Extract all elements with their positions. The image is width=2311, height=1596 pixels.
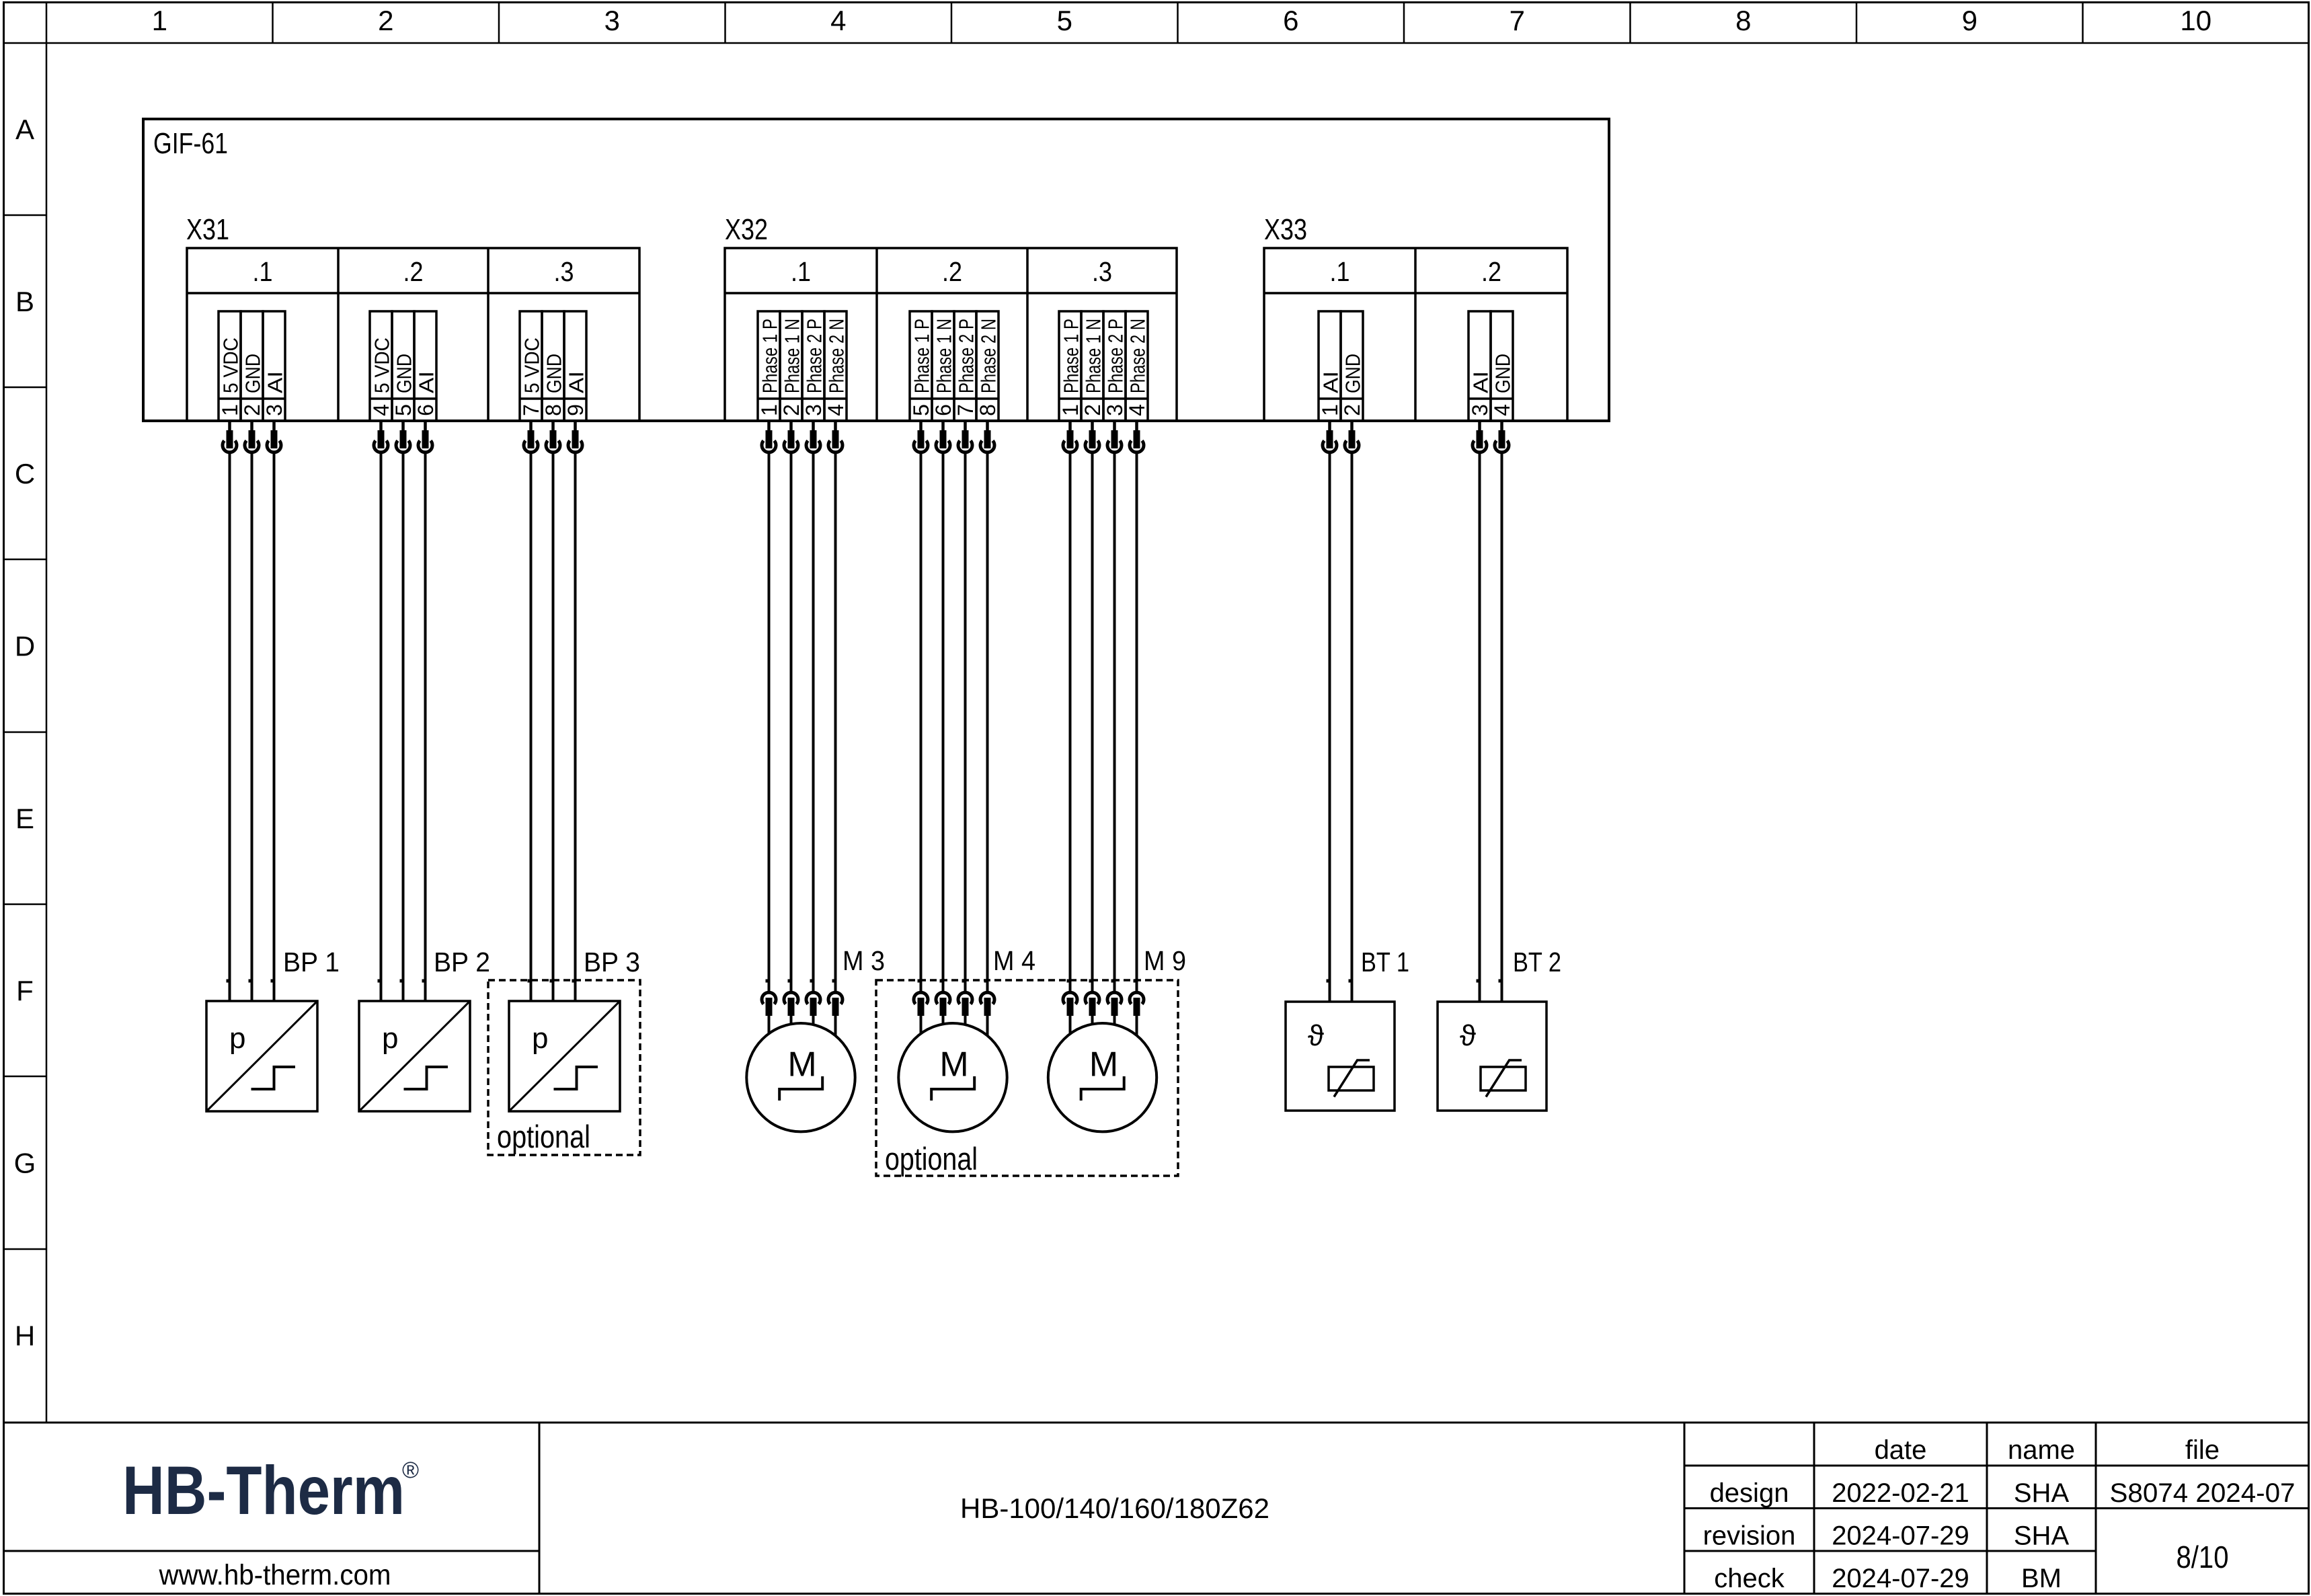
svg-text:check: check — [1714, 1564, 1785, 1593]
svg-text:1: 1 — [757, 404, 781, 416]
svg-text:p: p — [382, 1022, 398, 1055]
svg-text:4: 4 — [824, 404, 848, 416]
svg-text:BP 2: BP 2 — [434, 947, 490, 977]
svg-text:X32: X32 — [725, 213, 768, 246]
svg-text:AI: AI — [565, 371, 588, 393]
svg-text:.1: .1 — [253, 256, 273, 287]
svg-text:.3: .3 — [1092, 256, 1112, 287]
svg-text:GIF-61: GIF-61 — [153, 127, 228, 160]
svg-text:HB-Therm: HB-Therm — [122, 1452, 405, 1529]
svg-text:S8074 2024-07: S8074 2024-07 — [2110, 1478, 2296, 1508]
svg-text:AI: AI — [1319, 371, 1343, 393]
svg-text:M 4: M 4 — [993, 945, 1035, 976]
svg-text:GND: GND — [1491, 354, 1515, 393]
svg-text:Phase 2 N: Phase 2 N — [977, 319, 1001, 393]
svg-text:Phase 1 P: Phase 1 P — [910, 319, 934, 393]
svg-text:5: 5 — [909, 404, 933, 416]
svg-text:4: 4 — [1125, 404, 1149, 416]
svg-text:D: D — [15, 631, 35, 662]
svg-text:1: 1 — [218, 404, 242, 416]
svg-text:date: date — [1875, 1435, 1927, 1465]
svg-text:GND: GND — [241, 354, 265, 393]
svg-text:GND: GND — [543, 354, 566, 393]
svg-text:1: 1 — [1318, 404, 1342, 416]
svg-text:AI: AI — [1469, 371, 1493, 393]
svg-text:Phase 2 P: Phase 2 P — [803, 319, 826, 393]
svg-text:6: 6 — [1283, 5, 1298, 36]
svg-text:2: 2 — [779, 404, 804, 416]
svg-text:.2: .2 — [1481, 256, 1501, 287]
svg-text:10: 10 — [2180, 5, 2211, 36]
svg-text:.2: .2 — [942, 256, 962, 287]
svg-text:7: 7 — [519, 404, 543, 416]
svg-text:2024-07-29: 2024-07-29 — [1832, 1521, 1969, 1551]
svg-text:revision: revision — [1703, 1521, 1796, 1551]
svg-text:3: 3 — [801, 404, 826, 416]
svg-text:H: H — [15, 1320, 35, 1352]
svg-text:2: 2 — [1340, 404, 1364, 416]
svg-text:M 3: M 3 — [843, 945, 885, 976]
svg-text:2: 2 — [240, 404, 264, 416]
svg-text:Phase 1 P: Phase 1 P — [758, 319, 782, 393]
svg-text:8: 8 — [541, 404, 565, 416]
svg-text:9: 9 — [563, 404, 588, 416]
svg-text:2024-07-29: 2024-07-29 — [1832, 1564, 1969, 1593]
svg-text:Phase 1 N: Phase 1 N — [933, 319, 956, 393]
svg-text:Phase 2 P: Phase 2 P — [955, 319, 978, 393]
svg-text:p: p — [229, 1022, 245, 1055]
svg-text:6: 6 — [414, 404, 438, 416]
svg-text:X33: X33 — [1264, 213, 1307, 246]
svg-text:Phase 1 N: Phase 1 N — [1082, 319, 1105, 393]
svg-text:GND: GND — [1341, 354, 1365, 393]
svg-text:A: A — [15, 114, 34, 145]
svg-text:design: design — [1710, 1478, 1789, 1508]
svg-text:BT 2: BT 2 — [1513, 947, 1561, 977]
svg-text:8/10: 8/10 — [2177, 1540, 2229, 1574]
svg-text:SHA: SHA — [2014, 1478, 2070, 1508]
svg-text:.2: .2 — [403, 256, 424, 287]
svg-text:F: F — [16, 975, 34, 1006]
svg-text:BT 1: BT 1 — [1361, 947, 1409, 977]
svg-text:8: 8 — [976, 404, 1000, 416]
svg-text:9: 9 — [1962, 5, 1977, 36]
svg-text:3: 3 — [1468, 404, 1492, 416]
svg-text:2: 2 — [1081, 404, 1105, 416]
svg-text:BP 1: BP 1 — [283, 947, 340, 977]
svg-text:SHA: SHA — [2014, 1521, 2070, 1551]
svg-text:8: 8 — [1735, 5, 1751, 36]
svg-text:file: file — [2185, 1435, 2220, 1465]
svg-text:4: 4 — [369, 404, 393, 416]
svg-text:p: p — [532, 1022, 548, 1055]
svg-text:ϑ: ϑ — [1308, 1019, 1324, 1052]
svg-text:.3: .3 — [554, 256, 574, 287]
svg-text:BM: BM — [2021, 1564, 2062, 1593]
svg-text:.1: .1 — [1330, 256, 1350, 287]
svg-text:5 VDC: 5 VDC — [370, 337, 394, 393]
svg-text:Phase 2 N: Phase 2 N — [1126, 319, 1150, 393]
svg-text:5 VDC: 5 VDC — [219, 337, 243, 393]
svg-text:3: 3 — [262, 404, 286, 416]
svg-text:4: 4 — [830, 5, 846, 36]
svg-text:3: 3 — [1103, 404, 1127, 416]
svg-text:optional: optional — [885, 1141, 978, 1176]
svg-text:name: name — [2008, 1435, 2075, 1465]
svg-text:Phase 1 N: Phase 1 N — [781, 319, 804, 393]
svg-text:2: 2 — [378, 5, 393, 36]
svg-text:2022-02-21: 2022-02-21 — [1832, 1478, 1969, 1508]
svg-text:3: 3 — [604, 5, 620, 36]
svg-text:6: 6 — [931, 404, 955, 416]
svg-text:www.hb-therm.com: www.hb-therm.com — [159, 1559, 391, 1591]
svg-text:M 9: M 9 — [1144, 945, 1186, 976]
svg-text:M: M — [1089, 1045, 1118, 1084]
svg-text:5: 5 — [391, 404, 416, 416]
svg-text:Phase 2 N: Phase 2 N — [825, 319, 849, 393]
svg-text:AI: AI — [264, 371, 287, 393]
svg-text:M: M — [939, 1045, 968, 1084]
svg-text:1: 1 — [1058, 404, 1083, 416]
svg-text:5: 5 — [1057, 5, 1072, 36]
svg-text:4: 4 — [1490, 404, 1514, 416]
svg-text:C: C — [15, 458, 35, 489]
svg-text:1: 1 — [152, 5, 167, 36]
svg-text:5 VDC: 5 VDC — [520, 337, 544, 393]
svg-text:.1: .1 — [791, 256, 811, 287]
svg-text:GND: GND — [393, 354, 416, 393]
svg-text:G: G — [14, 1148, 36, 1179]
svg-text:Phase 2 P: Phase 2 P — [1104, 319, 1128, 393]
svg-text:7: 7 — [1510, 5, 1525, 36]
svg-text:®: ® — [402, 1458, 419, 1483]
svg-text:Phase 1 P: Phase 1 P — [1060, 319, 1083, 393]
svg-text:HB-100/140/160/180Z62: HB-100/140/160/180Z62 — [960, 1492, 1269, 1524]
svg-text:AI: AI — [415, 371, 438, 393]
svg-text:M: M — [787, 1045, 816, 1084]
svg-text:optional: optional — [497, 1119, 590, 1154]
svg-text:B: B — [15, 286, 34, 317]
svg-text:7: 7 — [953, 404, 978, 416]
svg-text:ϑ: ϑ — [1460, 1019, 1476, 1052]
svg-text:X31: X31 — [186, 213, 229, 246]
svg-text:E: E — [15, 803, 34, 834]
svg-text:BP 3: BP 3 — [584, 947, 640, 977]
